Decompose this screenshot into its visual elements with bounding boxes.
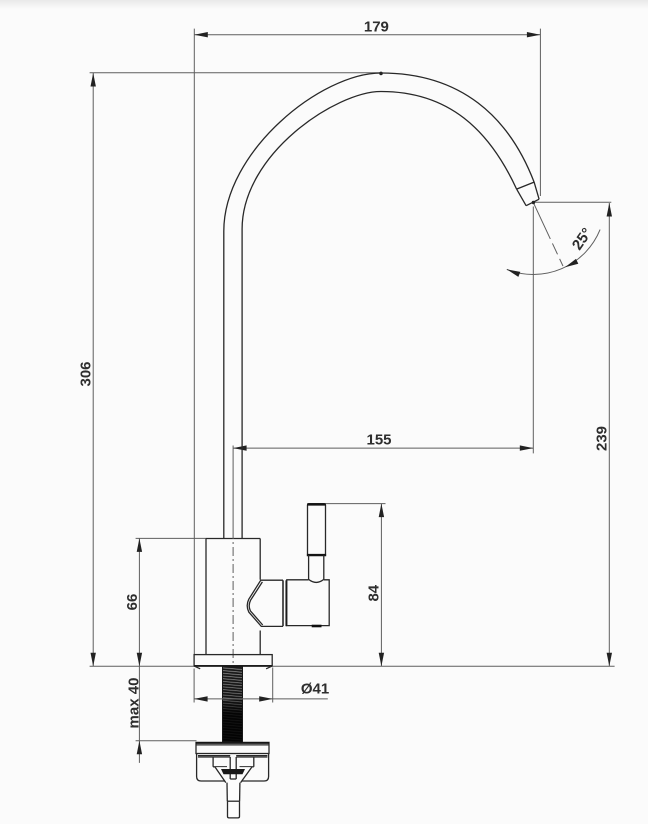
svg-text:155: 155 xyxy=(366,432,391,449)
svg-text:306: 306 xyxy=(78,361,95,386)
svg-text:66: 66 xyxy=(124,594,141,611)
svg-text:239: 239 xyxy=(594,426,611,451)
svg-text:84: 84 xyxy=(365,584,382,601)
svg-text:max 40: max 40 xyxy=(125,678,142,729)
svg-text:Ø41: Ø41 xyxy=(301,681,329,698)
svg-text:179: 179 xyxy=(364,19,389,36)
